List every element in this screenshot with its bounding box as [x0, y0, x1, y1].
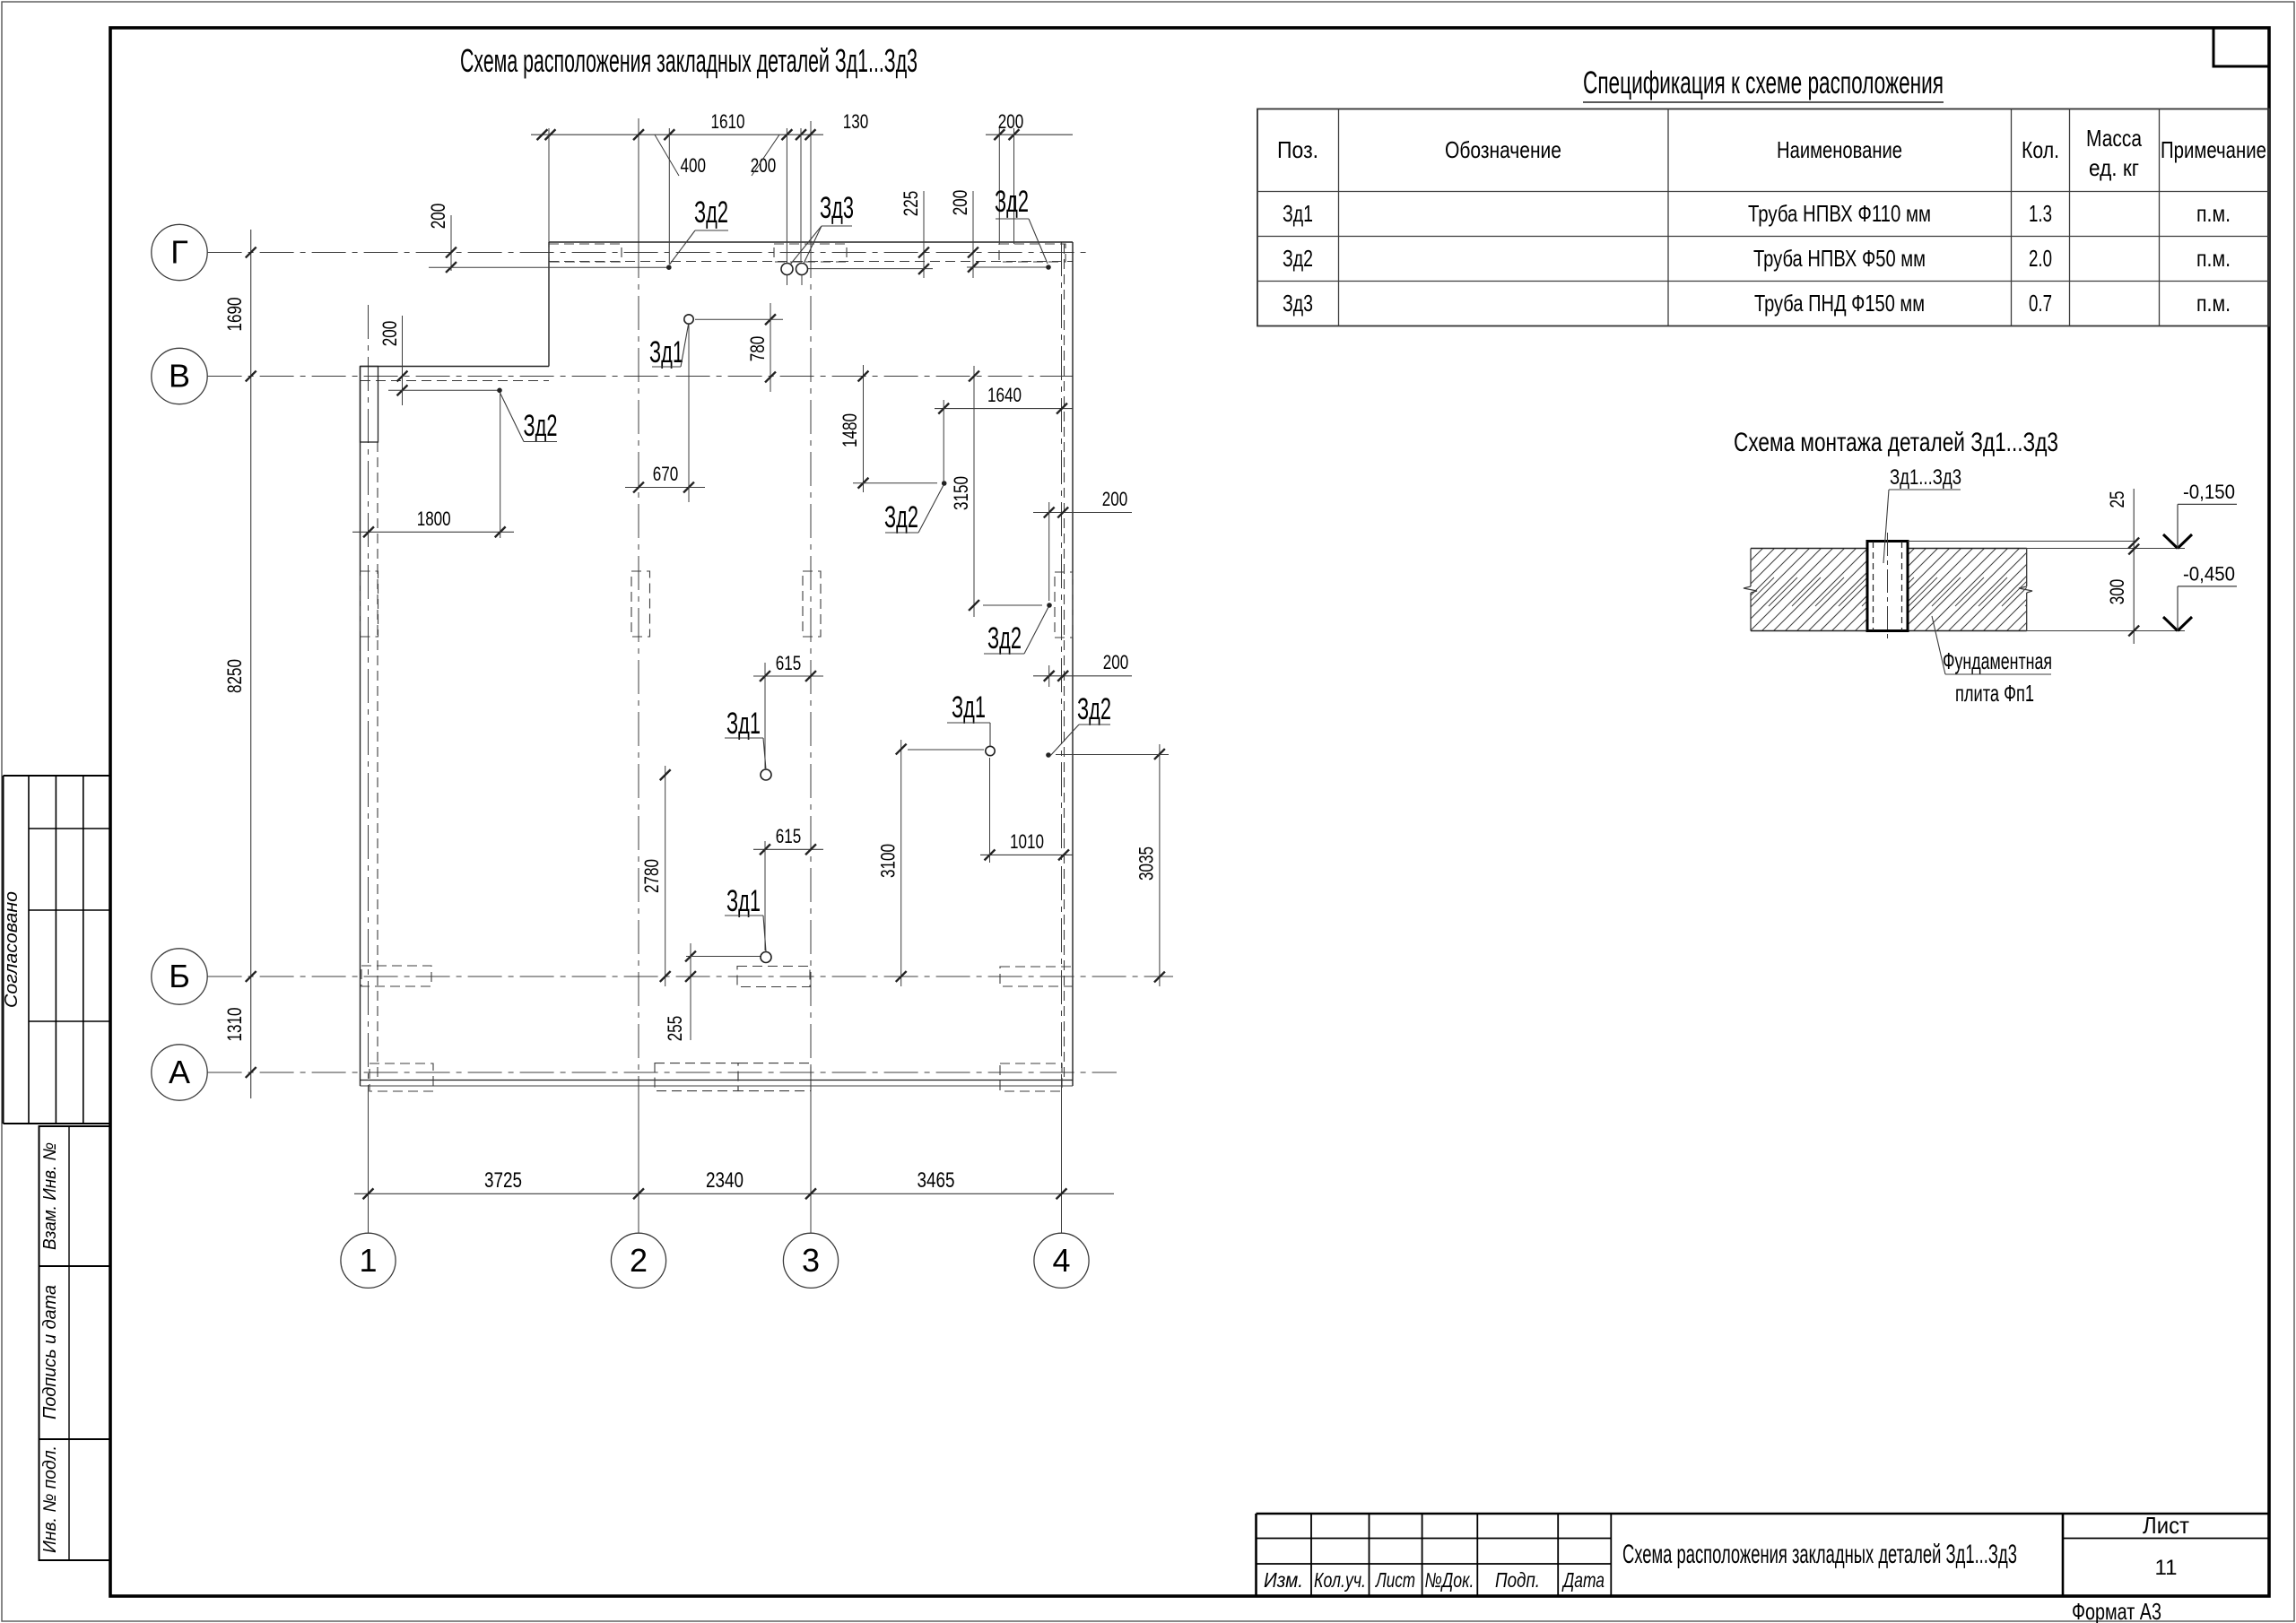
svg-text:200: 200	[378, 321, 401, 347]
svg-text:200: 200	[949, 190, 971, 216]
svg-text:615: 615	[776, 825, 802, 847]
svg-text:1610: 1610	[711, 110, 745, 133]
svg-text:Зд2: Зд2	[987, 621, 1022, 655]
svg-text:Схема расположения закладных д: Схема расположения закладных деталей Зд1…	[1622, 1540, 2017, 1569]
svg-text:Изм.: Изм.	[1264, 1568, 1303, 1592]
svg-text:Масса: Масса	[2086, 125, 2142, 152]
svg-text:Зд2: Зд2	[524, 409, 558, 443]
svg-text:-0,150: -0,150	[2183, 481, 2235, 503]
svg-text:1310: 1310	[223, 1008, 246, 1042]
svg-text:Зд1: Зд1	[726, 707, 761, 741]
svg-text:Взам. Инв. №: Взам. Инв. №	[40, 1142, 60, 1250]
svg-text:2340: 2340	[706, 1168, 744, 1193]
svg-text:25: 25	[2106, 491, 2128, 508]
svg-text:Зд1: Зд1	[1283, 200, 1313, 227]
svg-text:Инв. № подл.: Инв. № подл.	[40, 1445, 60, 1553]
svg-text:8250: 8250	[223, 659, 246, 693]
svg-text:1: 1	[359, 1242, 377, 1279]
svg-text:1800: 1800	[417, 508, 451, 530]
svg-text:Зд1...Зд3: Зд1...Зд3	[1890, 465, 1961, 490]
svg-text:Г: Г	[170, 234, 188, 271]
svg-text:Лист: Лист	[1375, 1568, 1415, 1592]
svg-text:1480: 1480	[839, 413, 861, 447]
svg-text:Зд1: Зд1	[952, 690, 986, 725]
svg-text:плита Фп1: плита Фп1	[1955, 680, 2034, 707]
svg-text:Зд2: Зд2	[694, 195, 728, 230]
svg-text:п.м.: п.м.	[2196, 290, 2231, 317]
svg-text:Кол.уч.: Кол.уч.	[1314, 1568, 1366, 1592]
svg-text:3: 3	[802, 1242, 820, 1279]
svg-text:300: 300	[2106, 579, 2128, 605]
svg-text:Формат А3: Формат А3	[2072, 1598, 2161, 1623]
svg-text:225: 225	[900, 191, 922, 217]
svg-text:3035: 3035	[1135, 846, 1158, 881]
svg-text:А: А	[169, 1054, 190, 1090]
svg-text:780: 780	[746, 336, 769, 362]
svg-text:1010: 1010	[1010, 830, 1044, 853]
svg-text:2.0: 2.0	[2029, 245, 2052, 272]
svg-text:Подпись и дата: Подпись и дата	[40, 1285, 60, 1419]
svg-text:п.м.: п.м.	[2196, 245, 2231, 272]
svg-text:2780: 2780	[640, 859, 663, 893]
svg-text:200: 200	[1102, 488, 1128, 510]
svg-text:3725: 3725	[484, 1168, 522, 1193]
svg-text:Труба ПНД Ф150 мм: Труба ПНД Ф150 мм	[1754, 290, 1925, 317]
svg-text:200: 200	[998, 110, 1024, 133]
svg-text:Зд2: Зд2	[1283, 245, 1313, 272]
svg-text:1640: 1640	[987, 384, 1022, 406]
svg-text:№Док.: №Док.	[1425, 1568, 1474, 1592]
svg-text:Зд2: Зд2	[884, 500, 918, 534]
svg-text:1.3: 1.3	[2029, 200, 2052, 227]
svg-text:Согласовано: Согласовано	[2, 891, 22, 1008]
svg-text:Наименование: Наименование	[1777, 136, 1902, 163]
svg-text:Подп.: Подп.	[1495, 1568, 1540, 1592]
svg-text:11: 11	[2155, 1556, 2178, 1580]
svg-text:Б: Б	[169, 958, 190, 994]
svg-text:Дата: Дата	[1561, 1568, 1605, 1592]
svg-text:400: 400	[681, 154, 707, 177]
svg-text:Поз.: Поз.	[1277, 136, 1318, 163]
svg-text:615: 615	[776, 652, 802, 674]
svg-text:3465: 3465	[918, 1168, 955, 1193]
svg-text:3100: 3100	[877, 844, 900, 878]
svg-text:130: 130	[843, 110, 869, 133]
svg-text:ед. кг: ед. кг	[2089, 154, 2139, 181]
svg-text:Зд1: Зд1	[649, 335, 683, 369]
svg-text:Схема расположения закладных д: Схема расположения закладных деталей Зд1…	[460, 42, 918, 79]
svg-text:Обозначение: Обозначение	[1445, 136, 1561, 163]
svg-text:3150: 3150	[950, 476, 972, 510]
svg-text:В: В	[169, 358, 190, 395]
svg-text:Фундаментная: Фундаментная	[1943, 647, 2052, 674]
svg-text:200: 200	[427, 204, 449, 230]
svg-text:Зд3: Зд3	[820, 191, 854, 225]
svg-text:Спецификация к схеме расположе: Спецификация к схеме расположения	[1583, 65, 1944, 100]
svg-text:-0,450: -0,450	[2183, 563, 2235, 586]
svg-text:п.м.: п.м.	[2196, 200, 2231, 227]
svg-text:Лист: Лист	[2143, 1512, 2189, 1539]
svg-text:200: 200	[1103, 651, 1129, 673]
svg-text:Примечание: Примечание	[2161, 136, 2266, 163]
svg-text:Зд1: Зд1	[726, 884, 761, 918]
svg-text:Труба НПВХ Ф110 мм: Труба НПВХ Ф110 мм	[1748, 200, 1931, 227]
svg-text:Схема монтажа деталей Зд1...Зд: Схема монтажа деталей Зд1...Зд3	[1734, 428, 2058, 457]
svg-text:2: 2	[630, 1242, 648, 1279]
svg-text:255: 255	[664, 1016, 686, 1042]
svg-text:Кол.: Кол.	[2022, 136, 2059, 163]
svg-text:0.7: 0.7	[2029, 290, 2052, 317]
svg-text:1690: 1690	[223, 298, 246, 332]
svg-text:670: 670	[653, 463, 679, 485]
svg-text:200: 200	[751, 154, 777, 177]
svg-text:4: 4	[1052, 1242, 1070, 1279]
svg-text:Зд2: Зд2	[1077, 692, 1111, 726]
svg-text:Зд3: Зд3	[1283, 290, 1313, 317]
svg-text:Зд2: Зд2	[995, 185, 1029, 219]
svg-text:Труба НПВХ Ф50 мм: Труба НПВХ Ф50 мм	[1753, 245, 1926, 272]
